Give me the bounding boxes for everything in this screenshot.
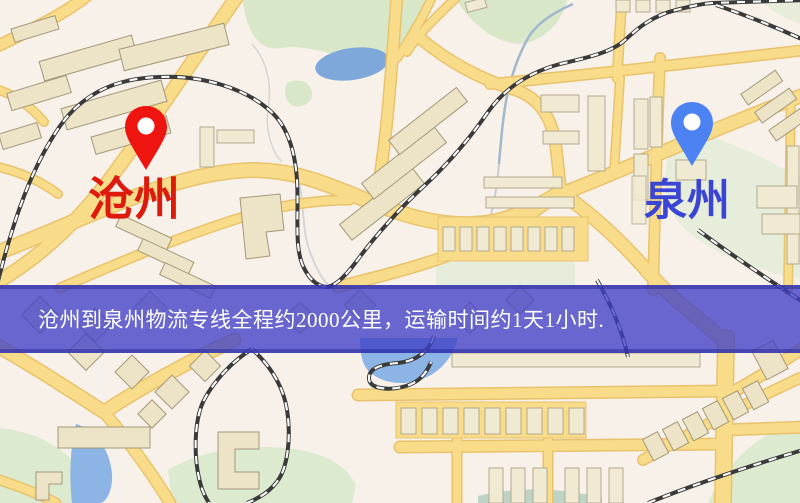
destination-label: 泉州: [644, 180, 730, 223]
origin-pin[interactable]: [122, 104, 170, 172]
origin-label: 沧州: [88, 177, 180, 223]
route-info-banner: 沧州到泉州物流专线全程约2000公里，运输时间约1天1小时.: [0, 285, 800, 353]
blue-map-pin-icon: [668, 100, 716, 168]
map-canvas[interactable]: [0, 0, 800, 503]
route-info-text: 沧州到泉州物流专线全程约2000公里，运输时间约1天1小时.: [0, 304, 604, 334]
red-map-pin-icon: [122, 104, 170, 172]
destination-pin[interactable]: [668, 100, 716, 168]
logistics-route-map: 沧州 泉州 沧州到泉州物流专线全程约2000公里，运输时间约1天1小时.: [0, 0, 800, 503]
